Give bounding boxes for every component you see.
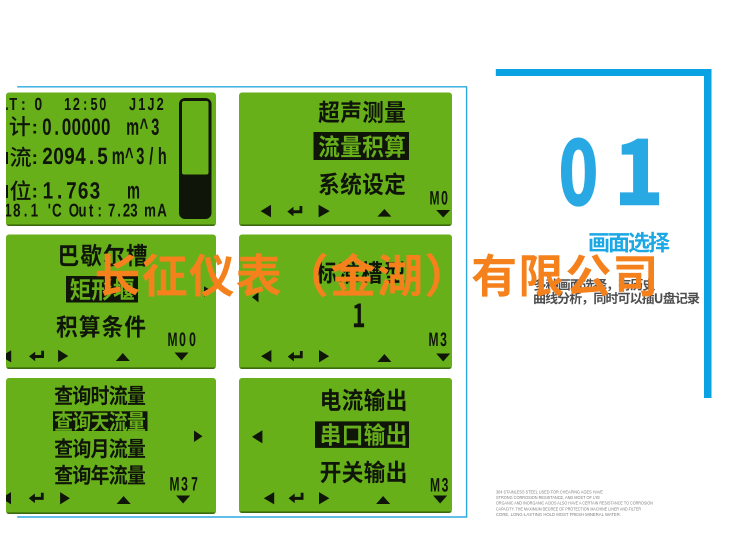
svg-text:CORE, LONG-LASTING HOLD MOST F: CORE, LONG-LASTING HOLD MOST FRESH MINER… [496,512,621,518]
svg-text:304 STAINLESS STEEL USED FOR C: 304 STAINLESS STEEL USED FOR CHEAPING AG… [496,490,603,496]
svg-text:CAPACITY. THE MAXIMUM DEGREE O: CAPACITY. THE MAXIMUM DEGREE OF PROTECTI… [496,506,641,512]
svg-text:STRONG CORROSION RESISTANCE, A: STRONG CORROSION RESISTANCE, AND MOST OF… [496,495,600,501]
svg-text:ORGANIC AND INORGANIC ACIDS AL: ORGANIC AND INORGANIC ACIDS ALSO HAVE A … [496,501,653,507]
